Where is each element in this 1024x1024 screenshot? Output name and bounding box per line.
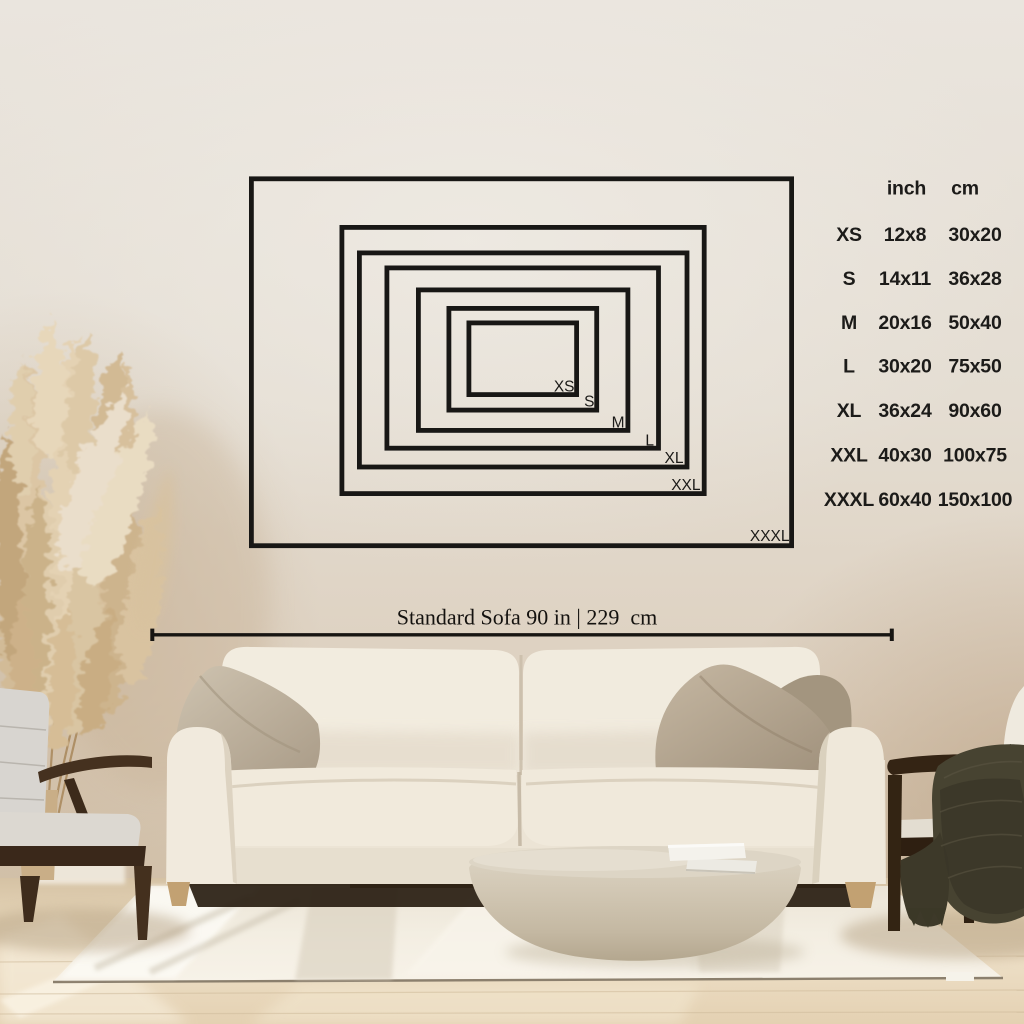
svg-text:XS: XS: [836, 224, 862, 246]
svg-text:S: S: [584, 394, 594, 411]
svg-text:XXXL: XXXL: [750, 528, 790, 545]
svg-text:cm: cm: [951, 178, 979, 200]
svg-text:14x11: 14x11: [879, 268, 932, 290]
svg-text:L: L: [645, 432, 654, 449]
svg-text:36x24: 36x24: [878, 400, 932, 422]
svg-text:M: M: [841, 312, 857, 334]
svg-text:inch: inch: [887, 178, 926, 200]
svg-text:12x8: 12x8: [884, 224, 927, 246]
svg-text:30x20: 30x20: [948, 224, 1002, 246]
svg-text:S: S: [843, 268, 856, 290]
svg-text:Standard Sofa 90 in | 229 cm: Standard Sofa 90 in | 229 cm: [397, 605, 657, 630]
svg-text:90x60: 90x60: [948, 400, 1002, 422]
svg-text:30x20: 30x20: [878, 356, 932, 378]
svg-text:XL: XL: [665, 450, 684, 467]
svg-text:L: L: [843, 356, 855, 378]
svg-text:XXL: XXL: [671, 477, 701, 494]
svg-text:XL: XL: [837, 400, 862, 422]
svg-text:75x50: 75x50: [948, 356, 1002, 378]
svg-text:XS: XS: [554, 379, 575, 396]
svg-text:100x75: 100x75: [943, 444, 1007, 466]
svg-text:60x40: 60x40: [878, 489, 932, 511]
svg-text:36x28: 36x28: [948, 268, 1002, 290]
svg-text:50x40: 50x40: [948, 312, 1002, 334]
svg-text:M: M: [612, 414, 625, 431]
svg-text:20x16: 20x16: [878, 312, 932, 334]
svg-text:40x30: 40x30: [878, 444, 932, 466]
svg-text:150x100: 150x100: [938, 489, 1013, 511]
svg-text:XXL: XXL: [830, 444, 868, 466]
svg-text:XXXL: XXXL: [824, 489, 874, 511]
